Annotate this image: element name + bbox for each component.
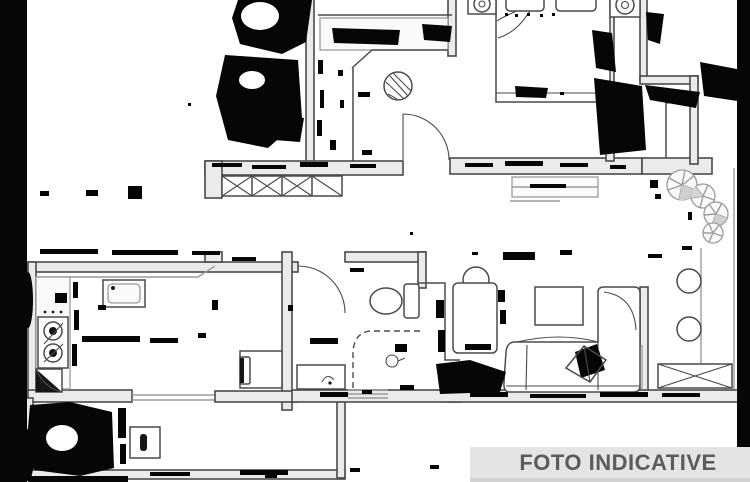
kitchen-desk [240, 351, 282, 388]
toilet [370, 284, 419, 318]
photo-indicative-banner: FOTO INDICATIVE [470, 447, 750, 482]
floor-plan-image: FOTO INDICATIVE [0, 0, 750, 482]
nightstand-lamp-right [610, 0, 640, 17]
ac-unit [130, 427, 160, 458]
terrace-plants [667, 170, 728, 243]
kitchen-sink [103, 280, 145, 307]
wardrobe-xboxes [222, 176, 342, 196]
coffee-table [535, 287, 583, 325]
terrace-stools [677, 269, 701, 341]
degradation-artifacts [27, 0, 744, 482]
corner-cabinet [36, 369, 62, 392]
terrace-table [658, 364, 732, 388]
floor-plan-drawing [0, 0, 750, 482]
nightstand-lamp-left [468, 0, 496, 14]
right-edge-strip [737, 0, 750, 447]
banner-text: FOTO INDICATIVE [519, 450, 716, 476]
armchair [453, 283, 497, 353]
entry-door-arc [403, 114, 449, 160]
shower [353, 331, 420, 388]
hall-table [384, 72, 412, 100]
stove [38, 311, 68, 368]
bathroom-door-arc [298, 266, 345, 313]
vanity-sink [297, 365, 345, 389]
window-planter [510, 177, 598, 201]
